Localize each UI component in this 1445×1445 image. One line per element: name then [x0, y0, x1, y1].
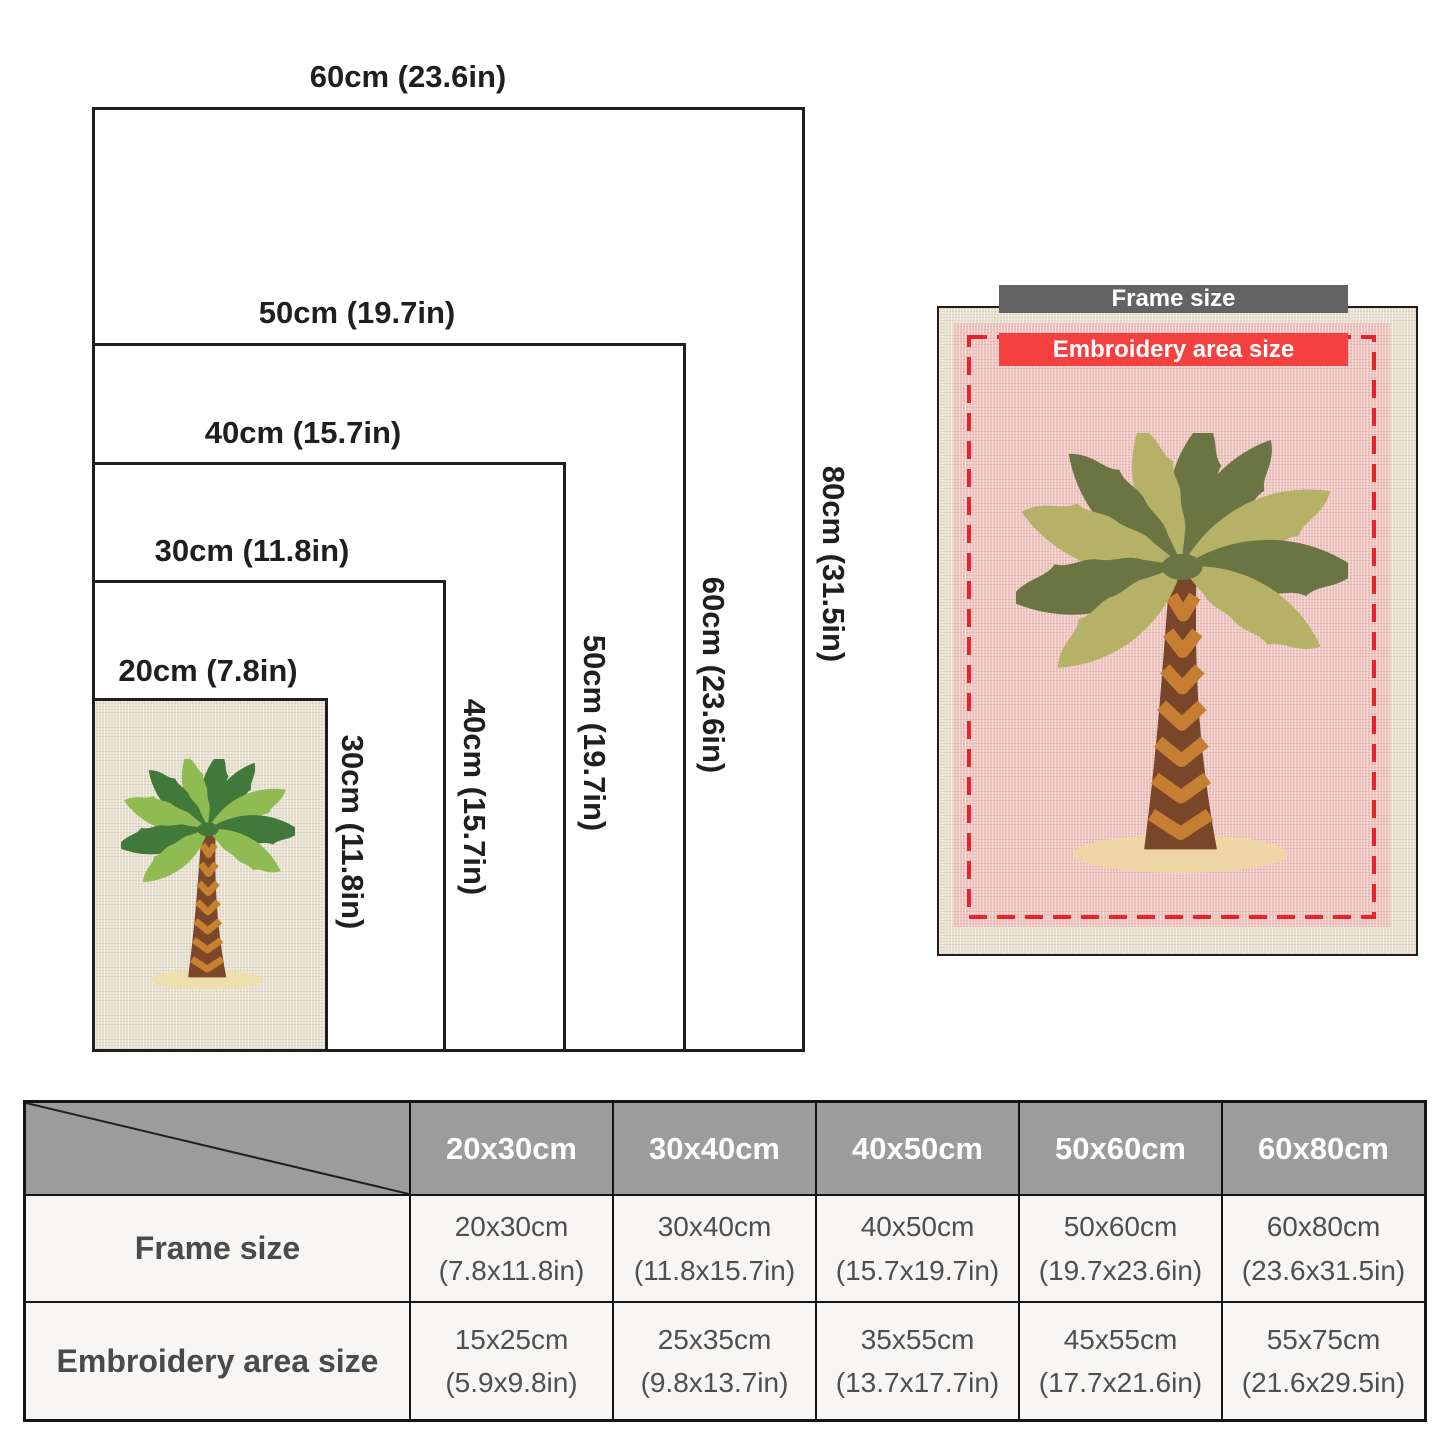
- row-label-frame-size: Frame size: [25, 1195, 410, 1302]
- size-table: 20x30cm 30x40cm 40x50cm 50x60cm 60x80cm …: [23, 1100, 1427, 1422]
- height-label-40cm: 40cm (15.7in): [457, 687, 491, 907]
- width-label-60cm: 60cm (23.6in): [288, 58, 528, 96]
- embroidery-size-chart-infographic: 60cm (23.6in) 50cm (19.7in) 40cm (15.7in…: [0, 0, 1445, 1445]
- width-label-30cm: 30cm (11.8in): [132, 532, 372, 570]
- height-label-30cm: 30cm (11.8in): [335, 722, 369, 942]
- frame-size-cell-20x30: 20x30cm(7.8x11.8in): [410, 1195, 613, 1302]
- row-label-embroidery-area: Embroidery area size: [25, 1302, 410, 1420]
- height-label-50cm: 50cm (19.7in): [577, 623, 611, 843]
- table-corner-cell: [25, 1102, 410, 1195]
- frame-size-badge: Frame size: [999, 285, 1348, 313]
- embroidery-area-cell-30x40: 25x35cm(9.8x13.7in): [613, 1302, 816, 1420]
- embroidery-area-cell-50x60: 45x55cm(17.7x21.6in): [1019, 1302, 1222, 1420]
- table-header-50x60: 50x60cm: [1019, 1102, 1222, 1195]
- frame-size-cell-60x80: 60x80cm(23.6x31.5in): [1222, 1195, 1425, 1302]
- embroidery-area-badge: Embroidery area size: [999, 333, 1348, 366]
- palm-tree-illustration-small: [121, 759, 295, 1002]
- palm-tree-illustration-large: [1016, 433, 1348, 896]
- embroidery-area-cell-40x50: 35x55cm(13.7x17.7in): [816, 1302, 1019, 1420]
- width-label-40cm: 40cm (15.7in): [183, 414, 423, 452]
- height-label-80cm: 80cm (31.5in): [816, 454, 850, 674]
- embroidery-pink-area: [953, 323, 1390, 927]
- embroidery-area-cell-20x30: 15x25cm(5.9x9.8in): [410, 1302, 613, 1420]
- table-header-20x30: 20x30cm: [410, 1102, 613, 1195]
- table-header-60x80: 60x80cm: [1222, 1102, 1425, 1195]
- embroidery-area-cell-60x80: 55x75cm(21.6x29.5in): [1222, 1302, 1425, 1420]
- width-label-20cm: 20cm (7.8in): [88, 652, 328, 690]
- table-header-30x40: 30x40cm: [613, 1102, 816, 1195]
- embroidery-sample-photo: Frame size Embroidery area size: [937, 306, 1418, 956]
- height-label-60cm: 60cm (23.6in): [696, 565, 730, 785]
- frame-size-cell-40x50: 40x50cm(15.7x19.7in): [816, 1195, 1019, 1302]
- diagonal-line: [26, 1103, 409, 1194]
- table-header-40x50: 40x50cm: [816, 1102, 1019, 1195]
- width-label-50cm: 50cm (19.7in): [237, 294, 477, 332]
- frame-size-cell-30x40: 30x40cm(11.8x15.7in): [613, 1195, 816, 1302]
- frame-rect-20x30-sample: [92, 698, 328, 1052]
- frame-size-cell-50x60: 50x60cm(19.7x23.6in): [1019, 1195, 1222, 1302]
